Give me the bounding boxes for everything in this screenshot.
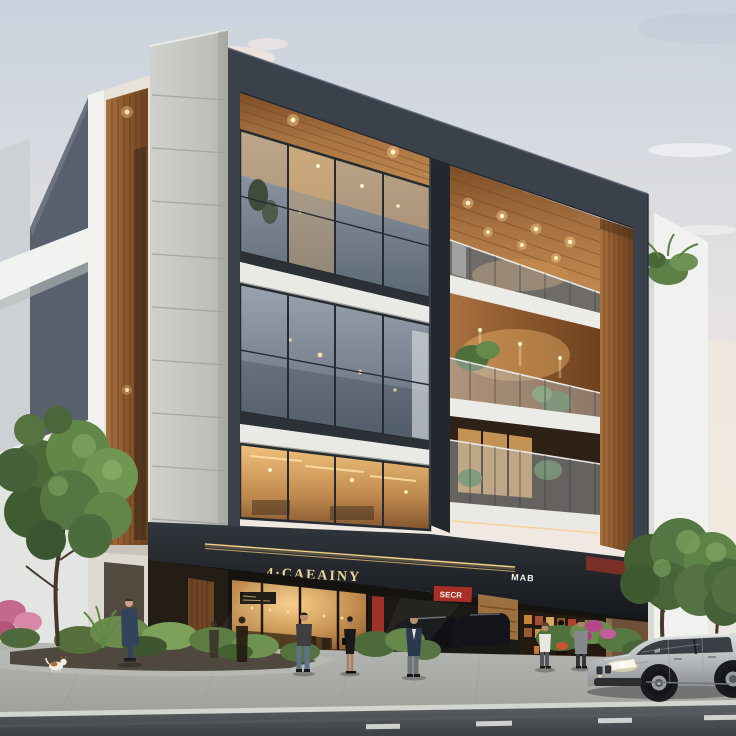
front-intake	[594, 678, 642, 686]
street-scene-render: 4·CAEAINY MAB SECR	[0, 0, 736, 736]
scene-canvas: 4·CAEAINY MAB SECR	[0, 0, 736, 736]
magenta-flowers	[585, 620, 603, 632]
left-neighbor-building	[0, 75, 150, 650]
concrete-pillar	[150, 30, 228, 556]
wood-accent-wall	[600, 218, 633, 553]
balcony-section	[450, 165, 600, 533]
soffit-downlight	[291, 118, 296, 123]
door-handle	[674, 658, 682, 660]
facade-divider-column	[430, 158, 450, 533]
display-car-2	[452, 613, 510, 646]
svg-text:SECR: SECR	[440, 590, 463, 600]
shop-sign: MAB	[511, 572, 535, 583]
red-interior-sign: SECR	[434, 586, 473, 602]
grille	[596, 666, 603, 675]
glass-facade-left	[240, 92, 430, 530]
